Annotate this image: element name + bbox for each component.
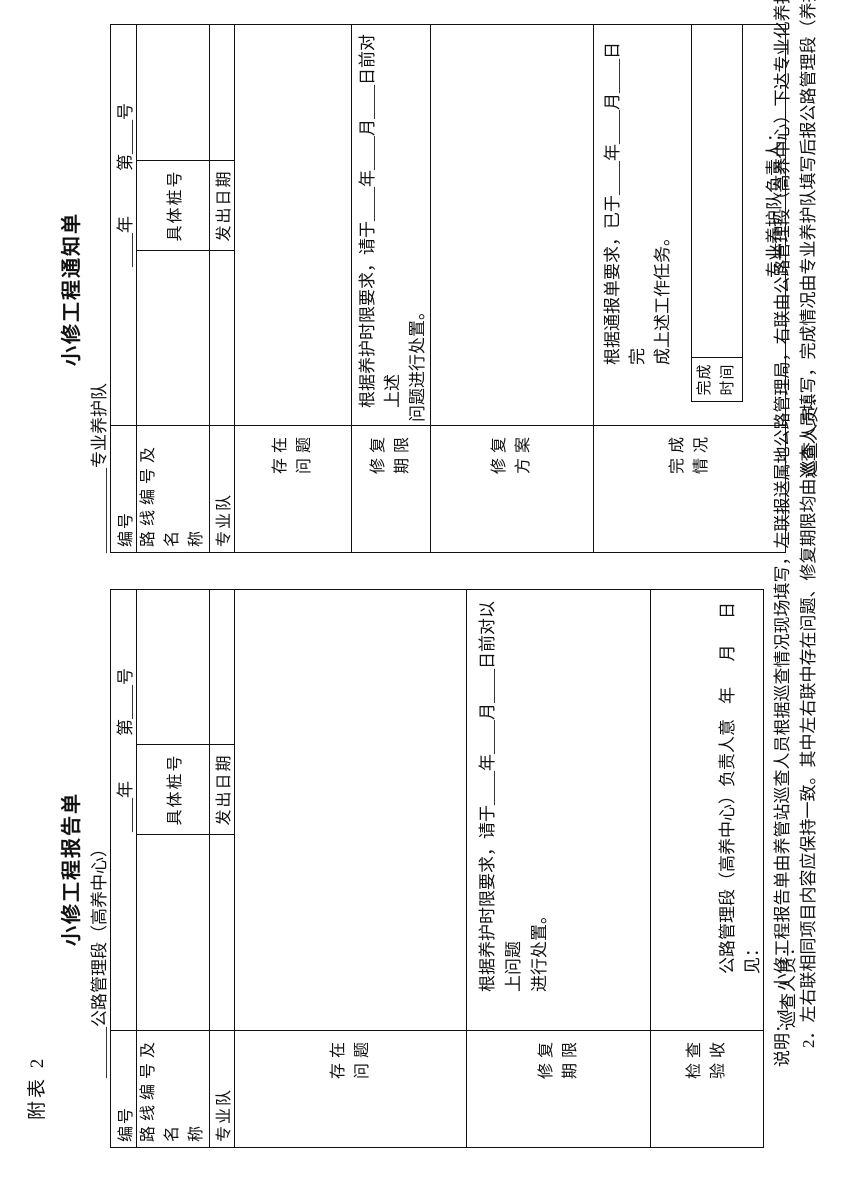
- notice-unit-line: __________专业养护队: [85, 383, 110, 553]
- report-issuedate-label: 发出日期: [210, 745, 235, 835]
- report-opinion-line: 公路管理段（高养中心）负责人意见：: [713, 704, 763, 974]
- report-stake-value: [137, 590, 210, 745]
- table-row: 路线编号及名 称 具体桩号: [137, 25, 210, 553]
- completion-time-box: 完成 时间: [691, 25, 743, 402]
- report-team-value: [210, 835, 235, 1031]
- report-form-header: ______公路管理段（高养中心）: [81, 590, 110, 1148]
- notice-deadline-text: 根据养护时限要求，请于____年____月____日前对上述 问题进行处置。: [352, 25, 431, 426]
- table-row: 修复 期限 根据养护时限要求，请于____年____月____日前对上述 问题进…: [352, 25, 431, 553]
- footnote-line-1: 说明：1．小修工程报告单由养管站巡查人员根据巡查情况现场填写，左联报送属地公路管…: [770, 0, 796, 1067]
- notice-number-value: ____年第____号: [111, 25, 137, 426]
- report-deadline-label: 修复 期限: [467, 1031, 651, 1148]
- notice-form-table: 编号 ____年第____号 路线编号及名 称 具体桩号 专业队 发出日期: [110, 24, 786, 553]
- notice-plan-value: [431, 25, 594, 426]
- rotated-landscape-page: 附表 2 小修工程报告单 ______公路管理段（高养中心） 编号 ____年第…: [0, 0, 865, 1181]
- notice-stake-label: 具体桩号: [137, 161, 210, 251]
- report-check-cell: 公路管理段（高养中心）负责人意见： 年 月 日: [651, 590, 764, 1031]
- report-team-label: 专业队: [210, 1031, 235, 1148]
- notice-form-header: __________专业养护队: [81, 25, 110, 553]
- report-check-label: 检查 验收: [651, 1031, 764, 1148]
- footnotes: 说明：1．小修工程报告单由养管站巡查人员根据巡查情况现场填写，左联报送属地公路管…: [770, 0, 822, 1067]
- report-route-label: 路线编号及名 称: [137, 1031, 210, 1148]
- table-row: 编号 ____年第____号: [111, 590, 137, 1148]
- notice-deadline-label: 修复 期限: [352, 426, 431, 553]
- completion-time-label: 完成 时间: [692, 357, 742, 401]
- notice-stake-value: [137, 25, 210, 161]
- notice-route-value: [137, 251, 210, 426]
- table-row: 修复 期限 根据养护时限要求，请于____年____月____日前对以上问题 进…: [467, 590, 651, 1148]
- notice-route-label: 路线编号及名 称: [137, 426, 210, 553]
- table-row: 路线编号及名 称 具体桩号: [137, 590, 210, 1148]
- table-row: 编号 ____年第____号: [111, 25, 137, 553]
- report-problem-value: [235, 590, 467, 1031]
- report-stake-label: 具体桩号: [137, 745, 210, 835]
- report-number-label: 编号: [111, 1031, 137, 1148]
- table-row: 检查 验收 公路管理段（高养中心）负责人意见： 年 月 日: [651, 590, 764, 1148]
- scanned-form-page: { "page": { "attachment_tag": "附表 2", "b…: [0, 0, 865, 1181]
- completion-time-value: [692, 25, 742, 357]
- table-row: 存在 问题: [235, 590, 467, 1148]
- footnote-line-2: 2．左右联相同项目内容应保持一致。其中左右联中存在问题、修复期限均由巡查人员填写…: [796, 0, 822, 1067]
- notice-form: 小修工程通知单 __________专业养护队 编号 ____年第____号 路…: [55, 25, 821, 553]
- report-issuedate-value: [210, 590, 235, 745]
- report-form-table: 编号 ____年第____号 路线编号及名 称 具体桩号 专业队 发出日期: [110, 589, 764, 1148]
- report-unit-line: ______公路管理段（高养中心）: [85, 840, 110, 1078]
- table-row: 完成 情况 根据通报单要求，已于____年____月____日完 成上述工作任务…: [594, 25, 786, 553]
- notice-problem-label: 存在 问题: [235, 426, 352, 553]
- report-form-title: 小修工程报告单: [55, 590, 81, 1148]
- report-number-value: ____年第____号: [111, 590, 137, 1031]
- notice-completion-label: 完成 情况: [594, 426, 786, 553]
- report-deadline-text: 根据养护时限要求，请于____年____月____日前对以上问题 进行处置。: [467, 590, 651, 1031]
- notice-completion-cell: 根据通报单要求，已于____年____月____日完 成上述工作任务。 完成 时…: [594, 25, 786, 426]
- report-route-value: [137, 835, 210, 1031]
- notice-team-value: [210, 251, 235, 426]
- notice-form-title: 小修工程通知单: [55, 25, 81, 553]
- notice-plan-label: 修复 方案: [431, 426, 594, 553]
- notice-team-label: 专业队: [210, 426, 235, 553]
- table-row: 存在 问题: [235, 25, 352, 553]
- table-row: 修复 方案: [431, 25, 594, 553]
- attachment-tag: 附表 2: [22, 1056, 49, 1120]
- notice-issuedate-label: 发出日期: [210, 161, 235, 251]
- notice-number-label: 编号: [111, 426, 137, 553]
- table-row: 专业队 发出日期: [210, 25, 235, 553]
- notice-problem-value: [235, 25, 352, 426]
- table-row: 专业队 发出日期: [210, 590, 235, 1148]
- report-problem-label: 存在 问题: [235, 1031, 467, 1148]
- report-form: 小修工程报告单 ______公路管理段（高养中心） 编号 ____年第____号…: [55, 590, 799, 1148]
- report-date-line: 年 月 日: [713, 602, 763, 704]
- notice-issuedate-value: [210, 25, 235, 161]
